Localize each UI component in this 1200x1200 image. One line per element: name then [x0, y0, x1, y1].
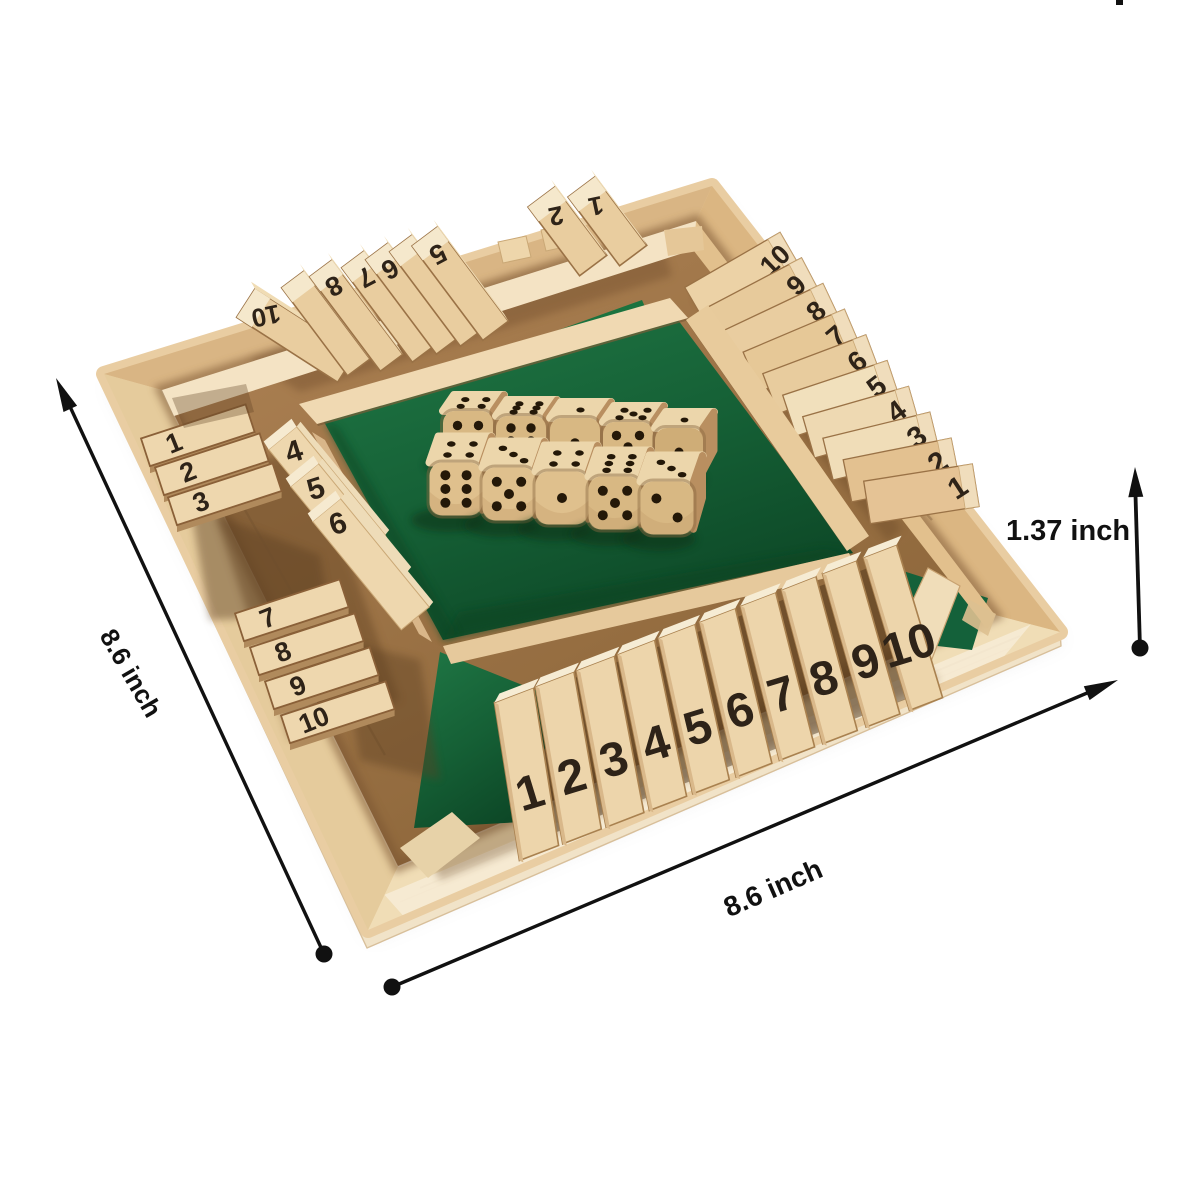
svg-text:1.37 inch: 1.37 inch [1006, 515, 1130, 547]
svg-text:10: 10 [249, 298, 284, 333]
